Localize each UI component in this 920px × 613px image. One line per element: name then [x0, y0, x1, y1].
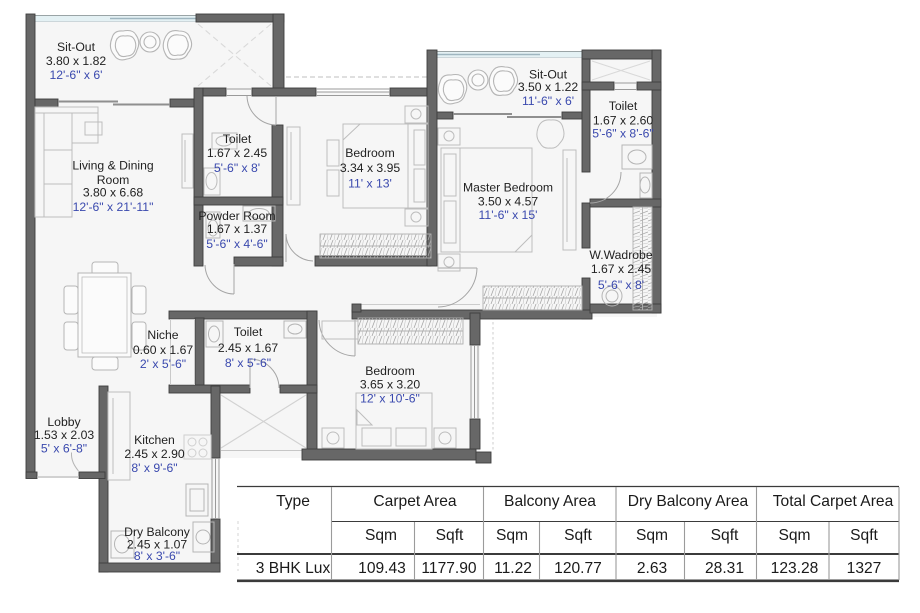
svg-text:3 BHK Lux: 3 BHK Lux: [256, 560, 331, 577]
svg-text:3.50 x 1.22: 3.50 x 1.22: [518, 80, 579, 94]
svg-text:Sqm: Sqm: [636, 527, 668, 544]
svg-text:Sqft: Sqft: [436, 527, 464, 544]
svg-text:Sqft: Sqft: [850, 527, 878, 544]
svg-text:W.Wadrobe: W.Wadrobe: [589, 248, 652, 262]
svg-text:11'-6" x 6': 11'-6" x 6': [522, 94, 574, 108]
svg-text:5' x 6'-8": 5' x 6'-8": [41, 442, 87, 456]
svg-text:Dry Balcony Area: Dry Balcony Area: [628, 493, 749, 510]
svg-text:11.22: 11.22: [494, 560, 532, 577]
svg-text:3.65 x 3.20: 3.65 x 3.20: [360, 378, 421, 392]
svg-text:Type: Type: [276, 493, 310, 510]
svg-text:Sqft: Sqft: [564, 527, 592, 544]
svg-text:3.80 x 1.82: 3.80 x 1.82: [46, 54, 107, 68]
svg-text:11'-6" x 15': 11'-6" x 15': [479, 208, 538, 222]
svg-text:Sqm: Sqm: [778, 527, 810, 544]
svg-text:Toilet: Toilet: [223, 132, 252, 146]
svg-text:Bedroom: Bedroom: [365, 364, 414, 378]
svg-text:Toilet: Toilet: [609, 99, 638, 113]
svg-text:2.45 x 2.90: 2.45 x 2.90: [124, 447, 185, 461]
svg-text:Balcony Area: Balcony Area: [504, 493, 596, 510]
svg-text:Toilet: Toilet: [234, 325, 263, 339]
svg-text:1.67 x 1.37: 1.67 x 1.37: [207, 222, 268, 236]
svg-text:Carpet Area: Carpet Area: [373, 493, 457, 510]
svg-text:123.28: 123.28: [771, 560, 819, 577]
svg-text:Total Carpet Area: Total Carpet Area: [773, 493, 894, 510]
svg-text:1.53 x 2.03: 1.53 x 2.03: [34, 428, 95, 442]
svg-text:Powder Room: Powder Room: [198, 209, 275, 223]
svg-text:2.63: 2.63: [637, 560, 667, 577]
svg-text:3.50 x 4.57: 3.50 x 4.57: [478, 195, 539, 209]
svg-text:0.60 x 1.67: 0.60 x 1.67: [133, 343, 194, 357]
svg-text:120.77: 120.77: [554, 560, 602, 577]
svg-text:Sqm: Sqm: [365, 527, 397, 544]
svg-text:Living & Dining: Living & Dining: [72, 159, 153, 173]
svg-text:12'-6" x 21'-11": 12'-6" x 21'-11": [73, 200, 154, 214]
svg-text:5'-6" x 8': 5'-6" x 8': [214, 161, 260, 175]
svg-text:1177.90: 1177.90: [421, 560, 477, 577]
svg-text:28.31: 28.31: [705, 560, 744, 577]
svg-text:1.67 x 2.45: 1.67 x 2.45: [207, 146, 268, 160]
svg-text:1.67 x 2.60: 1.67 x 2.60: [593, 114, 654, 128]
svg-text:Sqm: Sqm: [496, 527, 528, 544]
svg-text:8' x 5'-6": 8' x 5'-6": [225, 356, 271, 370]
svg-text:12'-6" x 6': 12'-6" x 6': [49, 68, 102, 82]
svg-text:2' x 5'-6": 2' x 5'-6": [140, 357, 186, 371]
svg-text:5'-6" x 4'-6": 5'-6" x 4'-6": [206, 237, 267, 251]
svg-text:Lobby: Lobby: [47, 415, 81, 429]
svg-text:Master Bedroom: Master Bedroom: [463, 181, 553, 195]
svg-text:5'-6" x 8'-6": 5'-6" x 8'-6": [592, 127, 653, 141]
svg-text:12' x 10'-6": 12' x 10'-6": [360, 392, 420, 406]
svg-text:8' x 9'-6": 8' x 9'-6": [131, 461, 177, 475]
svg-text:Bedroom: Bedroom: [345, 146, 394, 160]
svg-text:2.45 x 1.67: 2.45 x 1.67: [218, 341, 279, 355]
svg-text:Sit-Out: Sit-Out: [57, 40, 96, 54]
svg-text:109.43: 109.43: [358, 560, 406, 577]
svg-text:11' x 13': 11' x 13': [348, 177, 392, 191]
svg-text:3.80 x 6.68: 3.80 x 6.68: [83, 186, 144, 200]
svg-text:1.67 x 2.45: 1.67 x 2.45: [591, 262, 652, 276]
svg-text:Kitchen: Kitchen: [134, 433, 175, 447]
svg-text:Sqft: Sqft: [711, 527, 739, 544]
svg-text:3.34 x 3.95: 3.34 x 3.95: [340, 161, 401, 175]
svg-text:Niche: Niche: [147, 328, 178, 342]
svg-text:1327: 1327: [847, 560, 882, 577]
svg-text:5'-6" x 8': 5'-6" x 8': [598, 278, 644, 292]
svg-text:8' x 3'-6": 8' x 3'-6": [134, 549, 180, 563]
